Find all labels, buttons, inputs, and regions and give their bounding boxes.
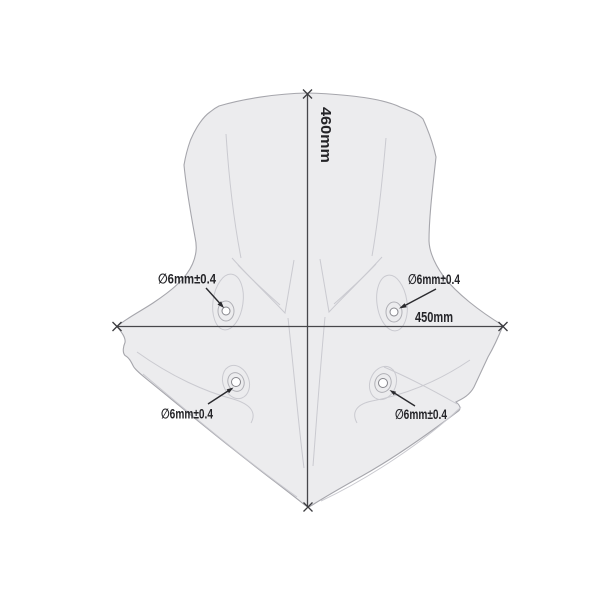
height-dimension-label: 460mm: [317, 107, 334, 163]
hole-center: [390, 308, 398, 316]
windscreen-outline: [117, 93, 503, 507]
width-dimension-label: 450mm: [415, 310, 453, 326]
hole-center: [222, 307, 230, 315]
windscreen-dimension-diagram: 460mm 450mm ∅6mm±0.4 ∅6mm±0.4 ∅6mm±0.4 ∅…: [0, 0, 600, 600]
hole-label-bottom-left: ∅6mm±0.4: [161, 406, 213, 422]
hole-label-top-left: ∅6mm±0.4: [158, 271, 216, 287]
hole-label-bottom-right: ∅6mm±0.4: [395, 406, 447, 422]
hole-center: [232, 378, 241, 387]
diagram-canvas: 460mm 450mm ∅6mm±0.4 ∅6mm±0.4 ∅6mm±0.4 ∅…: [0, 0, 600, 600]
hole-center: [379, 379, 388, 388]
hole-label-top-right: ∅6mm±0.4: [408, 271, 460, 287]
